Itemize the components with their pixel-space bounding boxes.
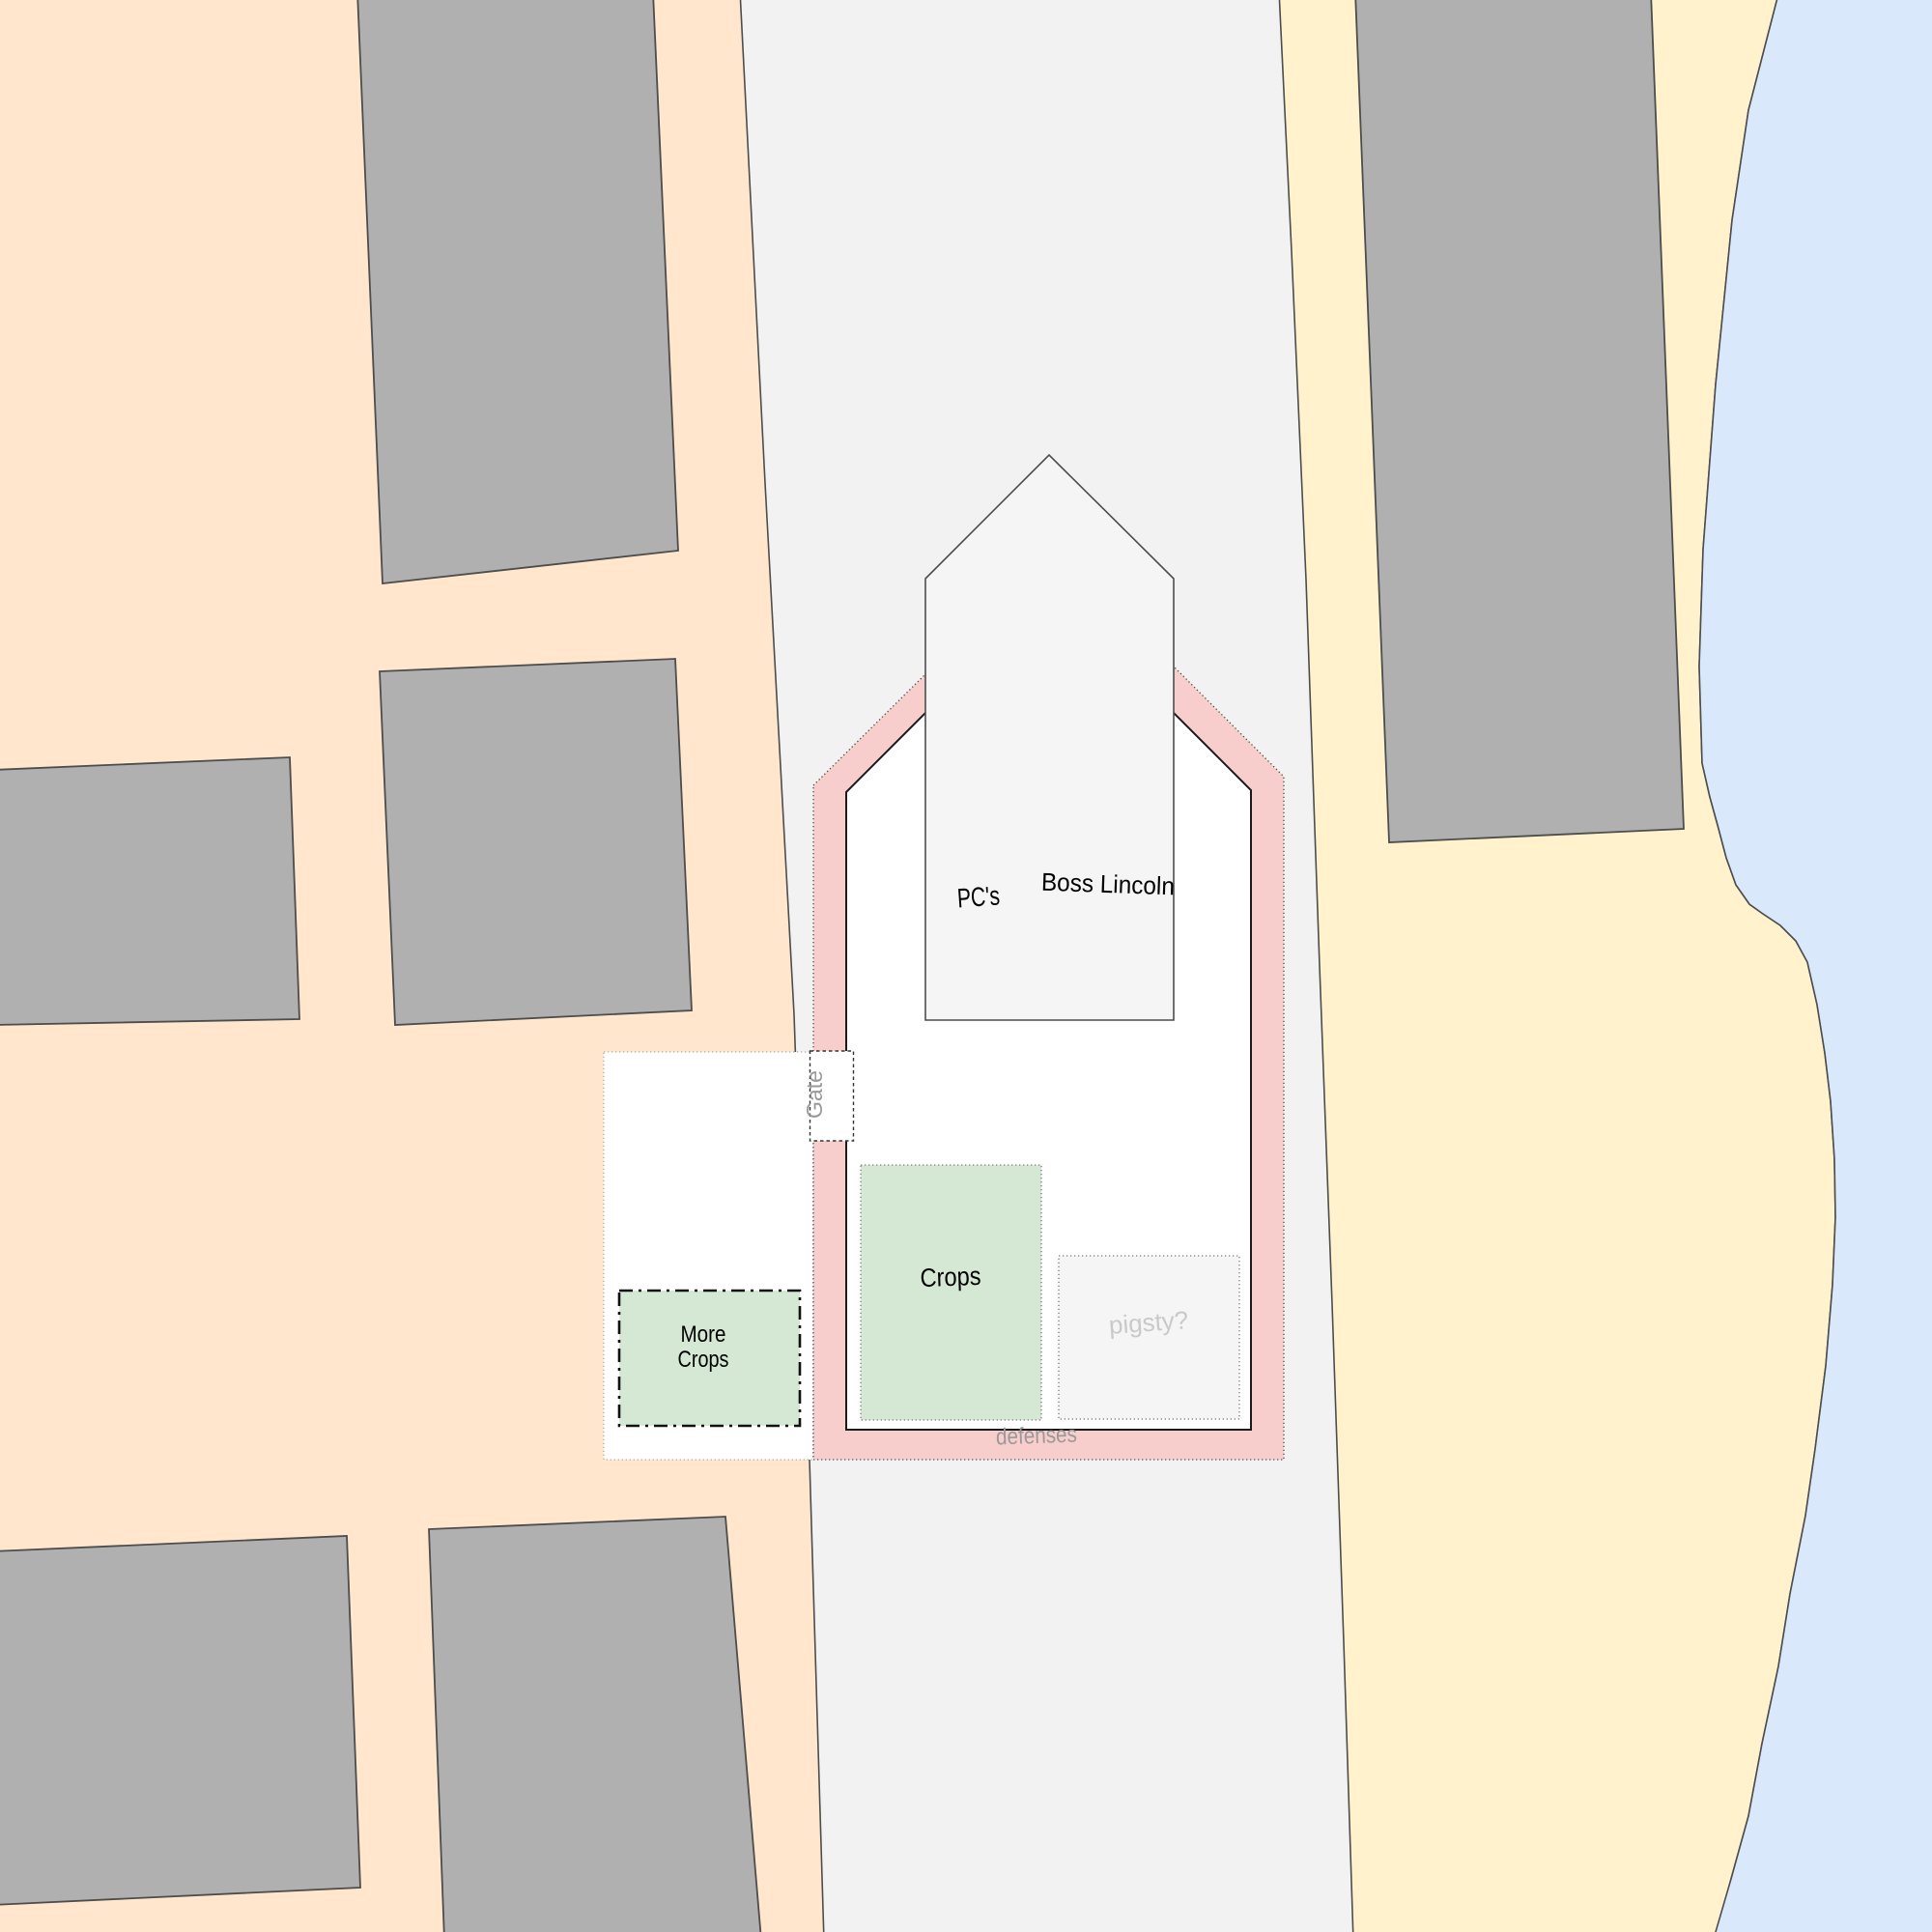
svg-text:Crops: Crops <box>678 1347 729 1373</box>
svg-text:More: More <box>681 1321 726 1348</box>
svg-text:Boss Lincoln: Boss Lincoln <box>1040 867 1175 901</box>
svg-text:Crops: Crops <box>920 1262 981 1293</box>
svg-text:pigsty?: pigsty? <box>1108 1305 1189 1340</box>
svg-text:defenses: defenses <box>995 1422 1077 1451</box>
svg-text:Gate: Gate <box>802 1070 827 1119</box>
svg-text:PC's: PC's <box>956 881 1001 914</box>
